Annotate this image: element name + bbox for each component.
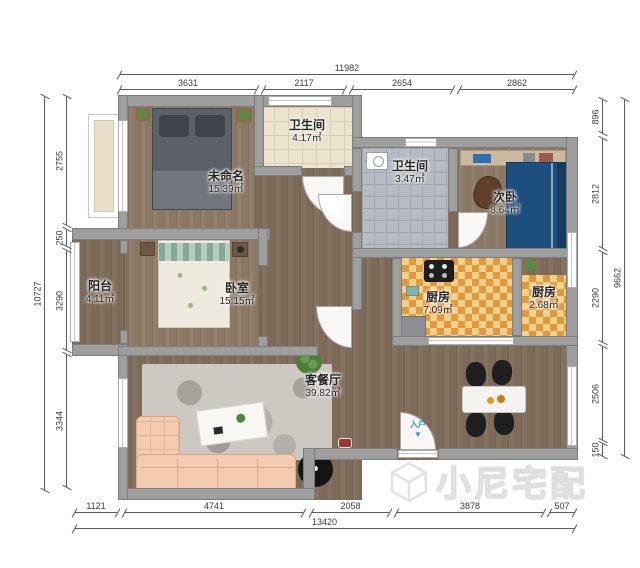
living-west-window [118,378,128,448]
dimension-left-segment: 3344 [66,355,67,487]
second-bedroom-left-wall [448,148,458,212]
bathroom-2-window [405,138,437,147]
kitchen-pass-window [428,337,514,345]
room-label-unnamed: 未命名 15.39㎡ [208,170,244,195]
room-label-kitchen-small: 厨房 2.68㎡ [529,286,558,311]
dimension-label: 3344 [56,411,65,431]
bath1-bottom-wall-a [254,166,302,176]
entry-label: 入户 [410,420,426,429]
dimension-label: 2506 [592,383,601,403]
room-label-bathroom-2: 卫生间 3.47㎡ [392,160,428,185]
balcony-east-stub-a [120,240,128,254]
dimension-bottom-segment: 3878 [397,512,543,513]
bath2-left-wall-a [352,148,362,192]
dimension-top-segment: 2862 [460,89,574,90]
dimension-top-segment: 3631 [120,89,256,90]
dimension-top-segment: 2117 [264,89,344,90]
decor-tray [338,438,352,448]
bed-headboard [557,163,565,257]
dimension-left-segment: 3290 [66,251,67,350]
watermark-text: 小尼宅配 [436,456,588,507]
room-label-kitchen-large: 厨房 7.09㎡ [423,291,452,316]
dimension-top-segment: 2654 [352,89,452,90]
entry-sill [398,450,438,458]
dimension-left-total: 10727 [44,97,45,490]
dimension-label: 2812 [592,183,601,203]
mid-horizontal-wall [352,248,578,258]
room-label-bathroom-1: 卫生间 4.17㎡ [289,119,325,144]
entry-arrow-icon: ▼ [414,430,422,439]
dimension-right-segment: 2506 [602,347,603,440]
dining-table [462,386,526,413]
sink [406,286,419,296]
wall-top-right [352,137,578,148]
floor-plan: 入户 ▼ 未命名 15.39㎡ 卫生间 4.17㎡ 卫生间 3.47㎡ 次卧 8… [0,0,640,568]
unnamed-bedroom-window [118,120,128,212]
dimension-label: 150 [592,442,601,457]
entry-marker: 入户 ▼ [402,420,434,439]
wall-bottom-right-a [303,448,398,460]
dimension-label: 2290 [592,287,601,307]
nightstand [140,242,155,256]
dimension-label: 3290 [56,290,65,310]
dimension-right-segment: 896 [602,100,603,133]
dimension-bottom-segment: 2058 [312,512,389,513]
dimension-label: 3631 [178,79,198,88]
dimension-label: 2654 [392,79,412,88]
dimension-label: 2755 [56,151,65,171]
watermark: 小尼宅配 [388,456,588,507]
kitchen-divider-wall [512,258,522,336]
bathroom-1-window [268,96,332,106]
bath2-left-wall-b [352,232,362,310]
dimension-label: 507 [554,502,569,511]
room-label-balcony: 阳台 4.11㎡ [86,280,115,305]
dimension-right-segment: 150 [602,444,603,456]
wall-bottom-right-b [438,448,578,460]
dimension-right-segment: 2290 [602,253,603,342]
dimension-top-total: 11982 [120,74,574,75]
room-label-second-bedroom: 次卧 8.64㎡ [490,191,519,216]
dimension-label: 1121 [86,502,105,511]
dimension-bottom-segment: 507 [550,512,574,513]
plant [524,259,536,271]
stove [424,260,454,282]
kitchen-left-wall [392,258,402,346]
plant [236,413,246,423]
washing-machine [366,152,388,170]
monitor [473,154,491,163]
dining-chair [493,409,515,435]
second-bedroom-window [567,232,577,288]
plant [236,108,252,122]
bed-pillow [195,115,225,137]
bedroom-right-wall-a [258,228,268,266]
balcony-top-wall [72,228,270,240]
dimension-label: 2862 [507,79,527,88]
living-top-wall [118,346,318,356]
dimension-label: 2117 [294,79,313,88]
dining-window [567,366,577,446]
dimension-label: 4741 [204,502,224,511]
dimension-left-segment: 2755 [66,97,67,225]
dimension-bottom-segment: 1121 [75,512,117,513]
dimension-label: 3878 [460,502,480,511]
dimension-right-segment: 2812 [602,139,603,248]
balcony-window [70,242,80,342]
dimension-bottom-total: 13420 [75,528,574,529]
bed-pillow-band [159,243,229,261]
dimension-label: 896 [592,109,601,124]
dimension-left-segment: 250 [66,230,67,246]
room-label-living-dining: 客餐厅 39.82㎡ [305,374,341,399]
bay-window [88,114,120,218]
plant [136,108,150,121]
wall-bottom-left [118,488,315,500]
cube-logo-icon [388,461,430,503]
dimension-label: 2058 [340,502,360,511]
dimension-label: 250 [56,230,65,245]
nightstand [232,242,248,257]
wall-unnamed-bath1 [254,95,264,175]
dimension-bottom-segment: 4741 [125,512,303,513]
bed-pillow [159,115,189,137]
balcony-east-stub-b [120,330,128,344]
room-label-master-bedroom: 卧室 15.15㎡ [219,282,254,307]
dimension-right-total: 9662 [624,100,625,456]
